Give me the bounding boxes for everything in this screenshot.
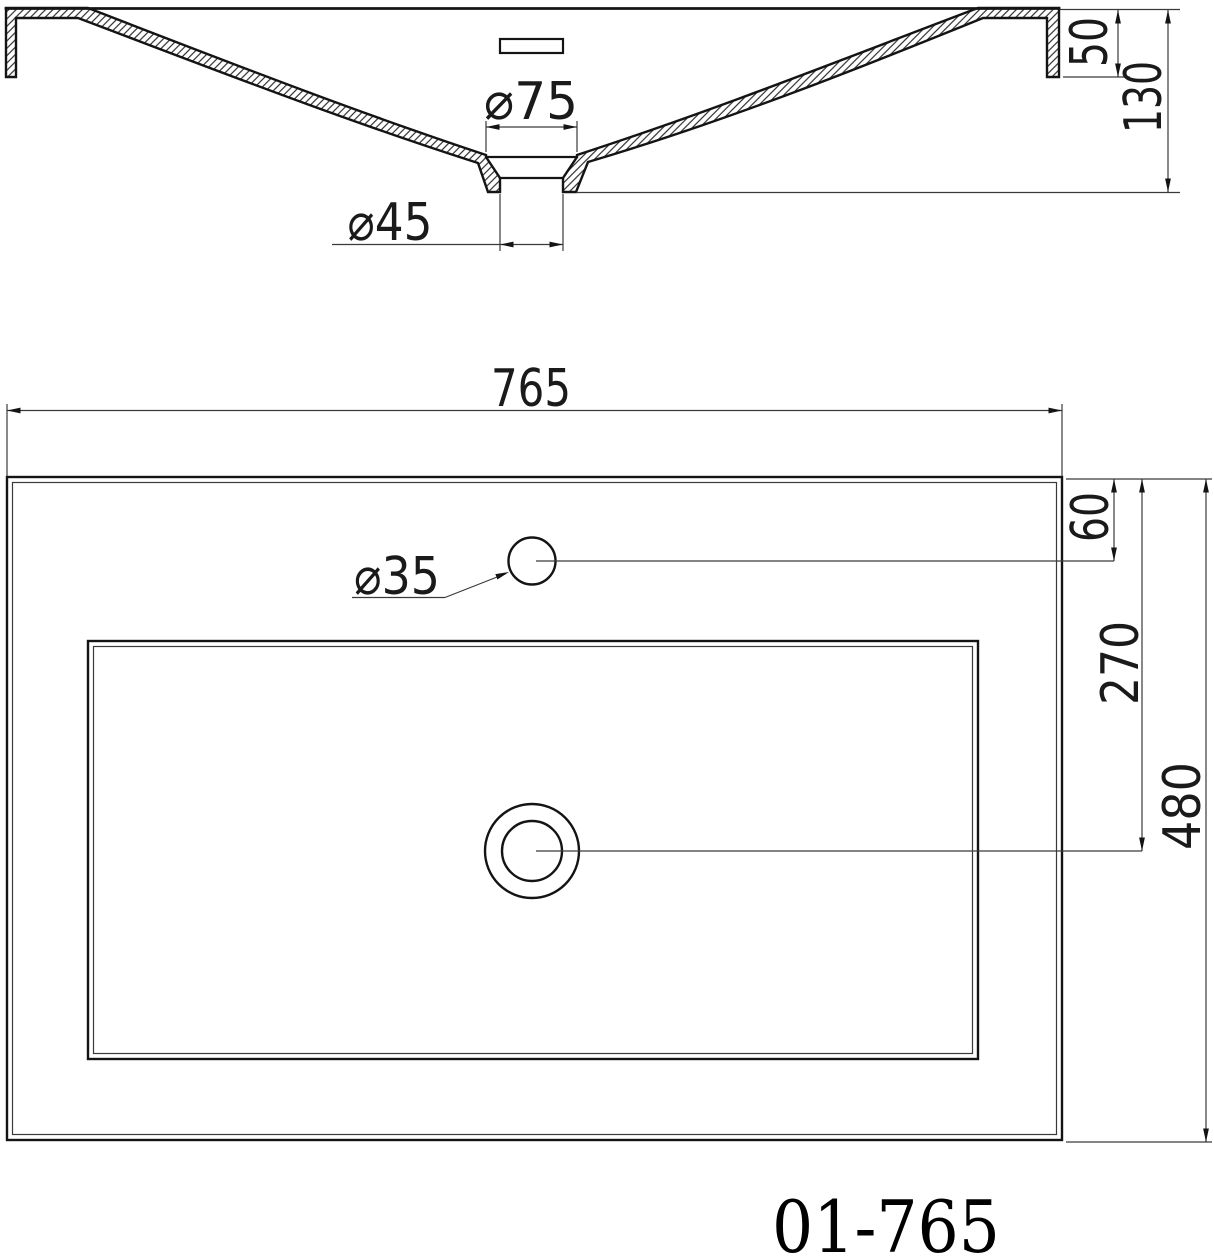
dim-faucet-hole-dia: ⌀35 (352, 547, 510, 607)
dim-label-overall-width: 765 (491, 359, 571, 419)
dim-label-faucet-hole-dia: ⌀35 (354, 547, 440, 607)
dim-overall-width: 765 (7, 359, 1062, 476)
technical-drawing-sheet: ⌀75 ⌀45 50 130 (0, 0, 1214, 1259)
outer-rim-rect-inner-line (13, 483, 1057, 1135)
dim-faucet-hole-offset: 60 (1061, 479, 1121, 561)
basin-rect-inner-line (94, 647, 973, 1054)
basin-rect (88, 641, 978, 1059)
dim-label-rim-height: 50 (1060, 17, 1120, 67)
dim-label-drain-flange-dia: ⌀75 (484, 72, 578, 132)
dim-overall-depth: 480 (1153, 479, 1213, 1142)
plan-view: 765 ⌀35 60 270 480 (7, 359, 1213, 1142)
outer-rim-rect (7, 477, 1062, 1140)
dim-label-drain-center-offset: 270 (1091, 621, 1151, 705)
dim-label-faucet-hole-offset: 60 (1061, 492, 1121, 542)
dim-overall-height: 130 (1114, 10, 1174, 192)
dim-drain-outlet-dia: ⌀45 (332, 193, 563, 253)
basin-technical-drawing: ⌀75 ⌀45 50 130 (0, 0, 1214, 1259)
section-view: ⌀75 ⌀45 50 130 (6, 8, 1180, 253)
title-block: 01-765 (772, 1185, 1000, 1259)
basin-shell-right-section (563, 8, 1059, 192)
basin-shell-left-section (6, 8, 500, 192)
drain-funnel-edges (486, 157, 577, 178)
dim-label-overall-height: 130 (1114, 61, 1174, 133)
dim-label-drain-outlet-dia: ⌀45 (348, 193, 433, 253)
dim-label-overall-depth: 480 (1153, 762, 1213, 850)
dim-rim-height: 50 (1060, 10, 1121, 77)
overflow-slot (500, 39, 563, 53)
dim-drain-flange-dia: ⌀75 (484, 72, 578, 152)
model-number: 01-765 (772, 1185, 1000, 1259)
